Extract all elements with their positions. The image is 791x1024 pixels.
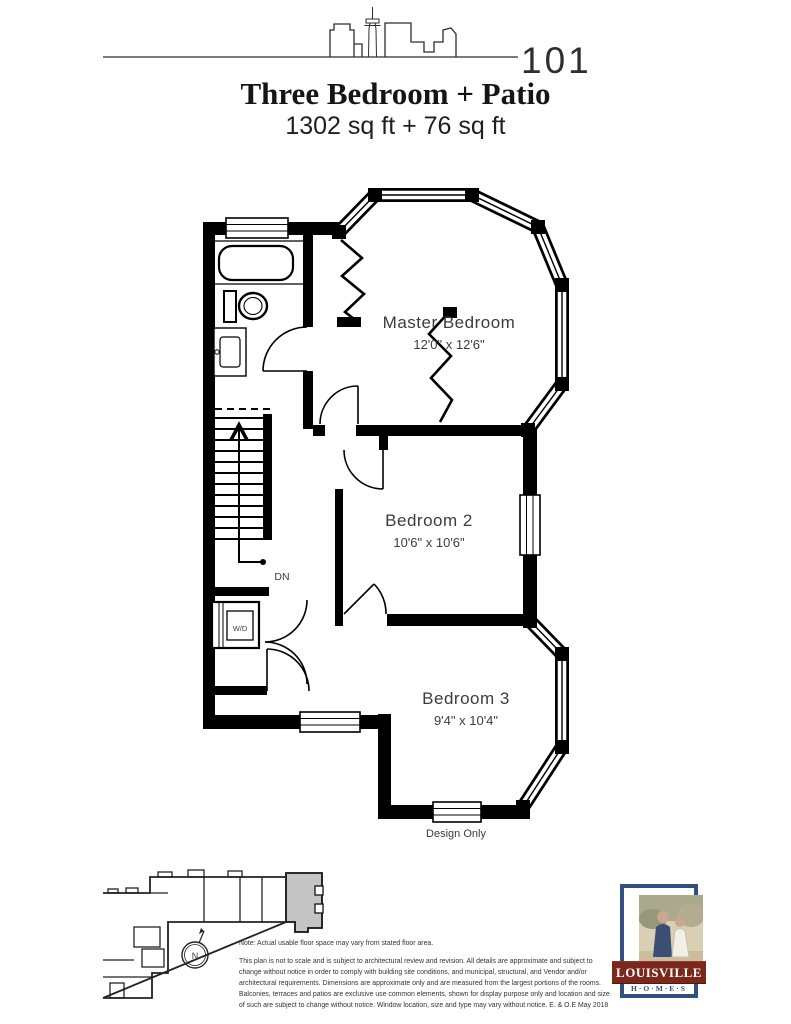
builder-logo: LOUISVILLE H·O·M·E·S [612, 884, 706, 1006]
north-arrow: N [182, 928, 208, 968]
window-lower-left [300, 712, 360, 732]
skyline-annex [354, 44, 362, 57]
cn-tower-icon [365, 7, 381, 57]
room-label-bedroom3: Bedroom 3 [422, 689, 510, 708]
window-bath [226, 218, 288, 238]
room-dims-bedroom3: 9'4" x 10'4" [434, 713, 498, 728]
washer-dryer-icon: W/D [212, 602, 259, 648]
door-laundry-double [265, 600, 307, 684]
area-subtitle: 1302 sq ft + 76 sq ft [0, 112, 791, 141]
doors [263, 327, 386, 691]
room-dims-bedroom2: 10'6" x 10'6" [393, 535, 465, 550]
window-bedroom2 [520, 495, 540, 555]
stairs [215, 409, 270, 565]
sink-icon [214, 328, 246, 376]
door-bedroom2-lower [344, 584, 386, 614]
room-label-master: Master Bedroom [383, 313, 516, 332]
sheet-artwork: W/D Master Bedroom 12'0" x 12'6" Bedroom… [0, 0, 791, 1024]
room-label-bedroom2: Bedroom 2 [385, 511, 473, 530]
door-bathroom [263, 327, 307, 371]
room-dims-master: 12'0" x 12'6" [413, 337, 485, 352]
disclaimer-text: This plan is not to scale and is subject… [239, 956, 611, 1011]
north-label: N [192, 951, 199, 961]
logo-brand: LOUISVILLE [612, 961, 706, 984]
toilet-icon [224, 291, 267, 322]
stairs-down-label: DN [274, 571, 289, 583]
door-bedroom2-entry [344, 450, 383, 489]
bathroom [214, 241, 303, 376]
door-hall-closet [267, 649, 309, 691]
floor-plan: W/D Master Bedroom 12'0" x 12'6" Bedroom… [203, 188, 569, 840]
disclaimer-block: Note: Actual usable floor space may vary… [239, 938, 611, 1018]
note-line: Note: Actual usable floor space may vary… [239, 938, 611, 949]
window-bedroom3-bottom [433, 802, 481, 822]
skyline-icon [103, 7, 518, 57]
door-master [320, 386, 358, 424]
floorplan-sheet: W/D Master Bedroom 12'0" x 12'6" Bedroom… [0, 0, 791, 1024]
skyline-tower-right [385, 23, 456, 57]
design-only-label: Design Only [426, 828, 486, 840]
logo-homes: H·O·M·E·S [624, 983, 694, 995]
bay-window-bedroom3 [516, 614, 569, 814]
page-title: Three Bedroom + Patio [0, 76, 791, 112]
key-plan-highlighted-unit [286, 873, 322, 932]
bifold-door-icon [341, 240, 364, 322]
bathtub-icon [219, 246, 293, 280]
skyline-tower-left [330, 24, 354, 57]
washer-dryer-label: W/D [233, 624, 248, 633]
logo-photo-icon [639, 895, 703, 965]
